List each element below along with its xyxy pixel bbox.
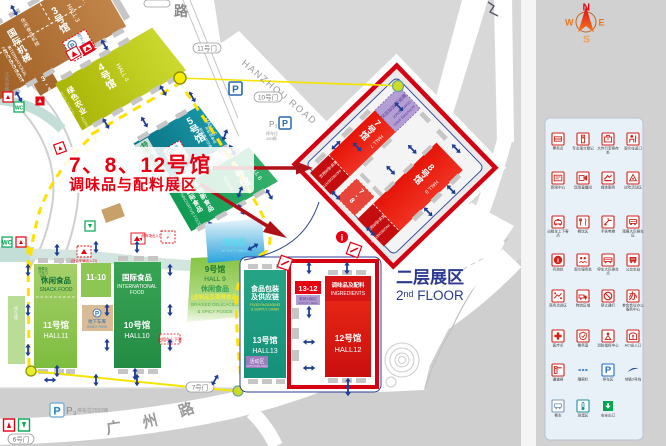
svg-text:SNACK FOOD: SNACK FOOD (39, 287, 72, 293)
svg-text:BRAISED DELICACIES: BRAISED DELICACIES (191, 302, 239, 307)
svg-text:新闻中心: 新闻中心 (551, 185, 566, 190)
svg-text:服务中心: 服务中心 (626, 307, 641, 312)
svg-text:& SUPPLY CHAIN: & SUPPLY CHAIN (251, 308, 279, 312)
svg-text:P₃: P₃ (269, 120, 278, 129)
svg-text:WC: WC (2, 241, 13, 247)
svg-text:停车楼: 停车楼 (14, 305, 18, 320)
svg-text:FOOD PACKAGING: FOOD PACKAGING (250, 303, 281, 307)
svg-text:W: W (565, 18, 574, 28)
svg-text:P₃: P₃ (66, 406, 77, 417)
svg-text:观众往返口: 观众往返口 (624, 146, 642, 151)
svg-text:7号门: 7号门 (192, 383, 209, 392)
svg-text:食品包装: 食品包装 (250, 284, 279, 293)
svg-text:点: 点 (556, 233, 560, 238)
svg-text:专业观众登记: 专业观众登记 (572, 146, 594, 151)
svg-text:11号馆: 11号馆 (43, 320, 69, 330)
svg-text:禁止通行: 禁止通行 (601, 303, 616, 308)
svg-text:媒体服务: 媒体服务 (601, 185, 616, 190)
svg-text:(社会车辆出入口): (社会车辆出入口) (71, 258, 97, 263)
svg-text:活动区: 活动区 (249, 358, 264, 365)
svg-text:停车位2550辆: 停车位2550辆 (77, 407, 108, 414)
svg-text:12号馆: 12号馆 (335, 333, 362, 343)
svg-text:调味品与配料展区: 调味品与配料展区 (69, 176, 197, 194)
svg-text:N: N (583, 2, 591, 14)
svg-text:P: P (95, 312, 99, 318)
svg-text:P: P (53, 406, 60, 418)
svg-text:S: S (583, 34, 590, 46)
svg-text:280辆: 280辆 (266, 135, 277, 141)
svg-text:餐饮区: 餐饮区 (578, 229, 589, 234)
svg-text:P: P (605, 365, 612, 376)
svg-text:广: 广 (105, 418, 122, 438)
svg-text:点: 点 (606, 271, 610, 276)
svg-text:P: P (232, 85, 239, 96)
svg-text:隔离栏: 隔离栏 (578, 377, 589, 382)
svg-text:江东中路: 江东中路 (4, 71, 9, 94)
svg-text:二层展区: 二层展区 (396, 268, 464, 287)
svg-text:休闲食品: 休闲食品 (200, 284, 229, 293)
svg-text:HALL13: HALL13 (252, 348, 277, 355)
svg-text:7、8、12号馆: 7、8、12号馆 (69, 153, 212, 177)
svg-text:HALL10: HALL10 (124, 333, 149, 340)
svg-text:(停车场出入口): (停车场出入口) (141, 233, 164, 238)
svg-text:HALL 9: HALL 9 (204, 276, 226, 283)
svg-text:ACTIVITY AREA: ACTIVITY AREA (298, 301, 318, 305)
svg-text:现场直播间: 现场直播间 (574, 185, 592, 190)
svg-text:办: 办 (629, 291, 638, 301)
svg-text:物流区域: 物流区域 (576, 303, 591, 308)
svg-text:活动区: 活动区 (222, 237, 246, 247)
svg-text:安全出口: 安全出口 (601, 413, 616, 418)
svg-text:10号馆: 10号馆 (124, 320, 151, 330)
svg-text:HALL11: HALL11 (44, 333, 69, 340)
svg-text:通道闸: 通道闸 (553, 377, 564, 382)
svg-text:11号门: 11号门 (197, 44, 217, 53)
svg-text:9号馆: 9号馆 (205, 264, 225, 274)
svg-text:地铁2号线: 地铁2号线 (625, 377, 642, 382)
svg-text:观众服务处: 观众服务处 (574, 267, 592, 272)
svg-text:13号馆: 13号馆 (253, 335, 278, 345)
svg-text:& SPICY FOODS: & SPICY FOODS (198, 309, 233, 314)
svg-text:6号门: 6号门 (13, 435, 30, 444)
svg-text:国际食品: 国际食品 (122, 272, 152, 282)
svg-text:FOOD: FOOD (130, 290, 145, 296)
svg-text:营销对接区: 营销对接区 (299, 296, 317, 301)
svg-text:HALL12: HALL12 (334, 345, 361, 354)
svg-text:ACTIVITY AREA: ACTIVITY AREA (221, 249, 247, 253)
svg-text:区: 区 (631, 234, 635, 238)
svg-text:手扶电梯: 手扶电梯 (601, 229, 616, 234)
svg-text:INGREDIENTS: INGREDIENTS (331, 291, 366, 297)
svg-text:警务室: 警务室 (578, 343, 589, 348)
svg-text:商务洽谈区: 商务洽谈区 (549, 303, 567, 308)
svg-text:测温区: 测温区 (578, 413, 589, 418)
svg-text:11-10: 11-10 (86, 273, 107, 282)
svg-text:调味品及配料: 调味品及配料 (331, 281, 365, 289)
svg-text:专区: 专区 (40, 274, 47, 279)
svg-text:ACI出入口: ACI出入口 (625, 343, 642, 348)
svg-text:地下车库: 地下车库 (88, 318, 106, 325)
svg-text:餐车: 餐车 (554, 413, 562, 418)
svg-text:10号门: 10号门 (258, 93, 278, 102)
svg-text:消防指挥中心: 消防指挥中心 (597, 343, 619, 348)
svg-text:i: i (341, 233, 344, 243)
svg-text:P: P (282, 119, 288, 129)
svg-text:i: i (557, 257, 559, 264)
svg-text:票务点: 票务点 (553, 146, 564, 151)
svg-text:SHADY PARK: SHADY PARK (87, 325, 108, 329)
svg-text:路: 路 (174, 3, 189, 19)
svg-text:处: 处 (606, 150, 610, 155)
svg-text:E: E (599, 18, 605, 28)
svg-text:问询处: 问询处 (553, 267, 564, 272)
svg-text:P: P (167, 235, 170, 240)
svg-text:WC: WC (15, 106, 24, 112)
svg-text:医疗点: 医疗点 (553, 343, 564, 348)
svg-text:ACTIVITIES AREA: ACTIVITIES AREA (246, 364, 268, 368)
svg-text:停车区: 停车区 (603, 377, 614, 382)
svg-text:公交车站: 公交车站 (626, 267, 641, 272)
svg-text:及供应链: 及供应链 (251, 292, 279, 301)
svg-text:试吃活动区: 试吃活动区 (624, 185, 642, 190)
svg-text:(卤制品及酉辣食品): (卤制品及酉辣食品) (191, 293, 239, 301)
